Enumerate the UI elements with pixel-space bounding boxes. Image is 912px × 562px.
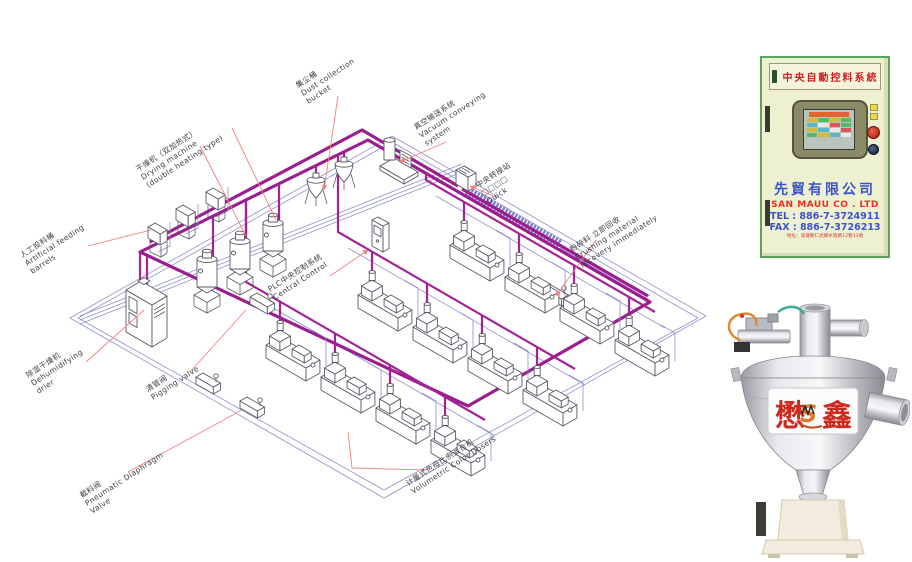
- thermometer-icon: [772, 70, 777, 83]
- brand-char-right: 鑫: [822, 399, 852, 434]
- pigging-valve-unit: [250, 293, 274, 314]
- catalog-page: 人工投料桶Artificial feedingbarrels 除湿干燥机Dehu…: [0, 0, 912, 562]
- molding-machine: [615, 316, 675, 376]
- molding-machine: [523, 366, 583, 426]
- molding-machine: [413, 303, 473, 363]
- company-name-zh: 先貿有限公司: [768, 182, 882, 199]
- cabinet-header-text: 中央自動控料系統: [783, 69, 879, 84]
- touchscreen-bezel: [792, 100, 868, 159]
- screen-title-bar: [809, 112, 849, 117]
- touchscreen: [803, 109, 855, 150]
- control-cabinet-photo: 中央自動控料系統: [758, 54, 892, 260]
- company-fax: FAX : 886-7-3726213: [768, 222, 882, 233]
- company-tel: TEL : 886-7-3724911: [768, 211, 882, 222]
- plc-control-box: [372, 217, 389, 252]
- door-hinge: [765, 106, 770, 132]
- label-crushing-recovery: 粉碎料 立即回收Crushing materialrecovery immedi…: [568, 196, 659, 269]
- red-pushbutton: [867, 126, 880, 139]
- label-feeding-barrels: 人工投料桶Artificial feedingbarrels: [18, 214, 91, 276]
- label-pigging-valve: 清管阀Pigging valve: [144, 355, 201, 401]
- company-name-en: SAN MAUU CO . LTD: [768, 200, 882, 211]
- drying-hopper: [194, 249, 220, 313]
- label-dehumidifying-dryer: 除湿干燥机Dehumidifyingdrier: [24, 339, 90, 396]
- company-address: 地址：高雄縣仁武鄉水管路12巷33號: [773, 234, 878, 240]
- diagram-labels: 人工投料桶Artificial feedingbarrels 除湿干燥机Dehu…: [18, 48, 659, 516]
- diaphragm-valve-unit: [240, 397, 264, 418]
- feeding-barrel: [148, 222, 170, 257]
- molding-machine: [505, 253, 565, 313]
- cabinet-body: 中央自動控料系統: [760, 56, 890, 258]
- pneumatic-actuator: [729, 307, 804, 352]
- molding-machine: [468, 334, 528, 394]
- indicator-lamp: [870, 104, 878, 111]
- molding-machine: [266, 321, 326, 381]
- label-dust-collection: 集尘桶Dust collectionbucket: [294, 48, 362, 106]
- label-vacuum-conveying: 真空输送系统Vacuum conveyingsystem: [412, 81, 493, 147]
- hopper-base: [756, 470, 864, 558]
- drying-hopper: [227, 231, 253, 295]
- molding-machine: [376, 384, 436, 444]
- company-info-block: 先貿有限公司 SAN MAUU CO . LTD TEL : 886-7-372…: [768, 182, 882, 239]
- cabinet-header-plate: 中央自動控料系統: [769, 63, 881, 90]
- molding-machine: [560, 284, 620, 344]
- brand-plate: 懋 S 鑫: [768, 388, 858, 434]
- label-drying-machine: 干燥机（双加热式）Drying machine(double heating t…: [134, 116, 225, 189]
- hopper-loader-photo: 懋 S 鑫: [718, 300, 910, 558]
- molding-machine: [450, 221, 510, 281]
- drying-hopper: [260, 213, 286, 277]
- diaphragm-valve-unit: [196, 373, 220, 394]
- molding-machine: [358, 271, 418, 331]
- dark-pushbutton: [868, 144, 879, 155]
- indicator-lamp: [870, 113, 878, 120]
- system-diagram: 人工投料桶Artificial feedingbarrels 除湿干燥机Dehu…: [0, 0, 730, 562]
- label-diaphragm-valve: 截料阀Pneumatic DiaphragmValve: [78, 442, 170, 516]
